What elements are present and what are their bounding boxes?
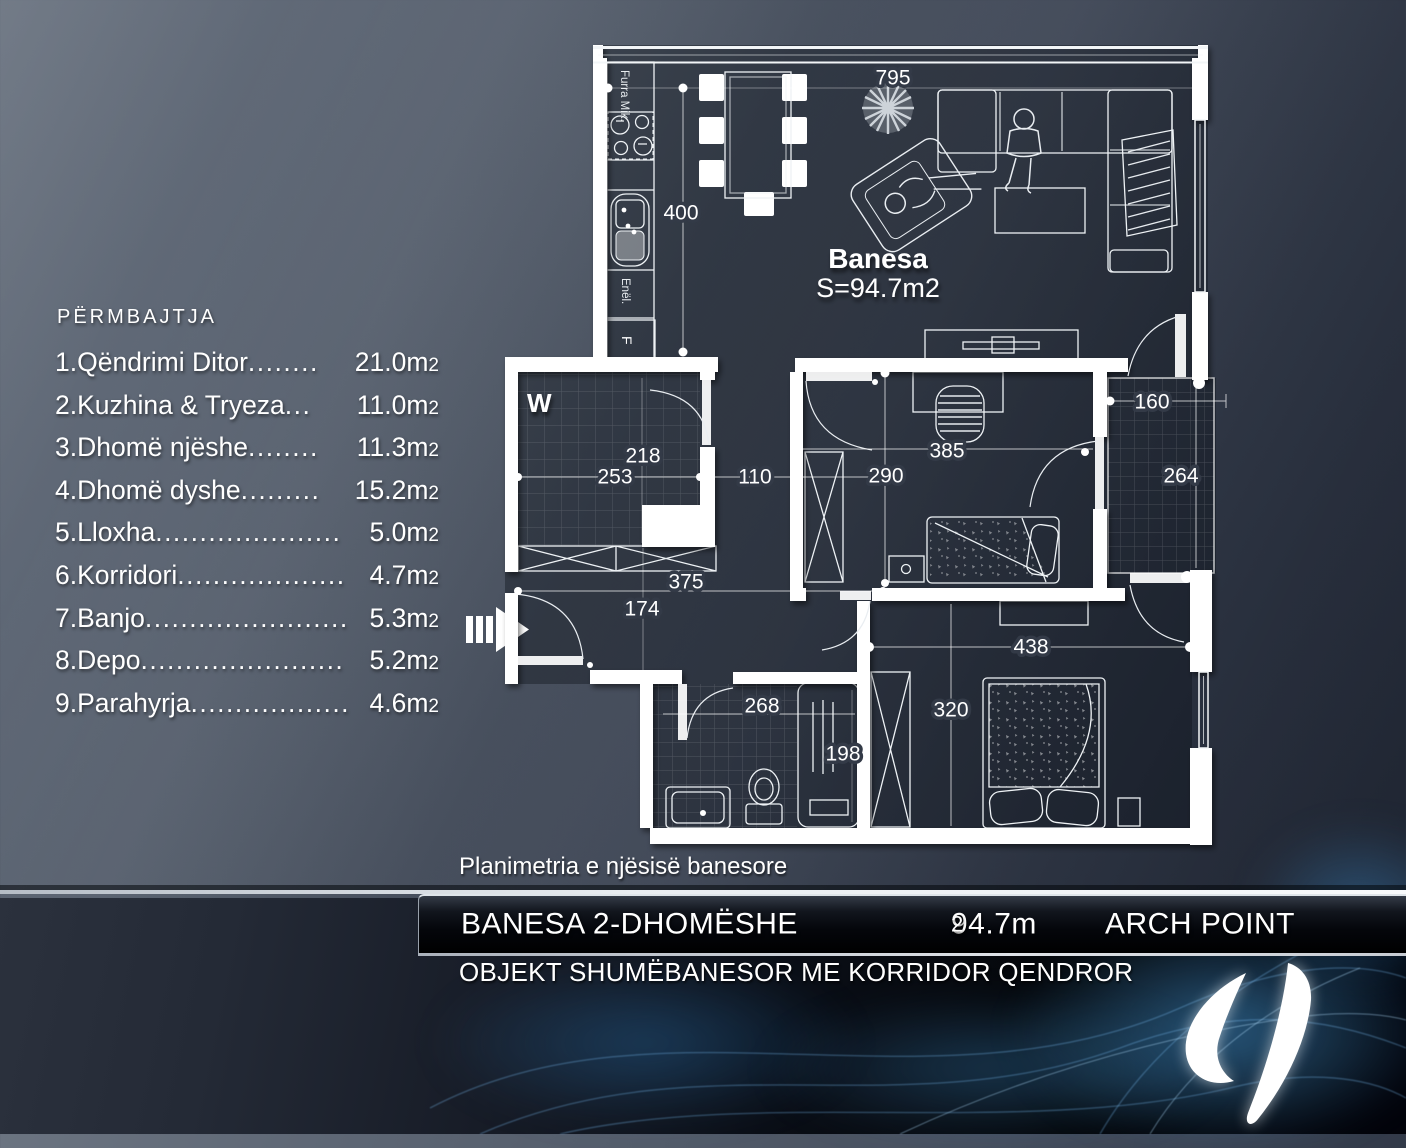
dim-w-room-width: 253 — [597, 466, 632, 489]
dim-room2-width: 438 — [1013, 636, 1048, 659]
dot-leader: ....................... — [145, 599, 370, 639]
dim-living-width: 795 — [875, 67, 910, 90]
legend-row: 1.Qëndrimi Ditor........21.0m2 — [55, 343, 439, 386]
dot-leader: ........ — [248, 343, 355, 383]
subtitle-text: OBJEKT SHUMËBANESOR ME KORRIDOR QENDROR — [459, 957, 1133, 988]
room-name: 9.Parahyrja — [55, 684, 191, 724]
room-area: 11.3m — [357, 428, 429, 468]
dim-shower-length: 198 — [825, 743, 860, 766]
legend-row: 8.Depo.......................5.2m2 — [55, 641, 439, 684]
area-superscript: 2 — [428, 516, 439, 556]
dim-closet-width: 375 — [668, 571, 703, 594]
w-room-label: W — [527, 388, 552, 418]
room-name: 5.Lloxha — [55, 513, 155, 553]
dot-leader: ................... — [177, 556, 369, 596]
unit-area-label: S=94.7m2 — [816, 273, 940, 303]
room-name: 8.Depo — [55, 641, 140, 681]
dim-balcony-width: 160 — [1134, 391, 1169, 414]
room-name: 2.Kuzhina & Tryeza — [55, 386, 285, 426]
area-superscript: 2 — [428, 559, 439, 599]
room-area: 11.0m — [357, 386, 429, 426]
brand-name: ARCH POINT — [1105, 907, 1295, 941]
area-superscript: 2 — [428, 389, 439, 429]
dot-leader: ... — [285, 386, 357, 426]
dot-leader: ......... — [241, 471, 355, 511]
legend-row: 9.Parahyrja..................4.6m2 — [55, 684, 439, 727]
area-superscript: 2 — [428, 644, 439, 684]
dim-hall-width: 110 — [738, 466, 771, 489]
area-superscript: 2 — [951, 911, 964, 937]
dim-room2-height: 320 — [933, 699, 968, 722]
room-area: 4.7m — [370, 556, 429, 596]
area-superscript: 2 — [428, 602, 439, 642]
area-superscript: 2 — [428, 431, 439, 471]
unit-name-label: Banesa — [828, 243, 928, 274]
dim-balcony-height: 264 — [1163, 465, 1198, 488]
legend-heading: PËRMBAJTJA — [57, 306, 439, 329]
legend-row: 7.Banjo.......................5.3m2 — [55, 599, 439, 642]
dim-room1-height: 290 — [868, 465, 903, 488]
fridge-label: F — [619, 336, 635, 345]
area-superscript: 2 — [428, 346, 439, 386]
area-superscript: 2 — [428, 687, 439, 727]
room-area: 21.0m — [355, 343, 429, 383]
dot-leader: ..................... — [155, 513, 369, 553]
dot-leader: .................. — [191, 684, 370, 724]
arch-point-logo-icon — [1168, 948, 1348, 1134]
dim-vestibule-height: 174 — [624, 598, 659, 621]
title-bar: BANESA 2-DHOMËSHE 94.7m2 ARCH POINT — [418, 894, 1406, 954]
dim-bath-width: 268 — [744, 695, 779, 718]
room-area: 5.0m — [370, 513, 429, 553]
room-name: 3.Dhomë njëshe — [55, 428, 248, 468]
kitchen-oven-label: Furra Mik. — [618, 70, 630, 122]
area-superscript: 2 — [428, 474, 439, 514]
room-area: 4.6m — [370, 684, 429, 724]
room-name: 6.Korridori — [55, 556, 177, 596]
dot-leader: ........ — [248, 428, 357, 468]
floor-plan-poster: { "colors": { "background_top": "#6b7481… — [0, 0, 1406, 1134]
dim-kitchen-height: 400 — [663, 202, 698, 225]
dot-leader: ....................... — [140, 641, 369, 681]
room-area: 5.3m — [370, 599, 429, 639]
room-area: 5.2m — [370, 641, 429, 681]
dim-w-room-height: 218 — [625, 445, 660, 468]
plan-caption: Planimetria e njësisë banesore — [459, 853, 787, 881]
room-name: 1.Qëndrimi Ditor — [55, 343, 248, 383]
legend-row: 6.Korridori...................4.7m2 — [55, 556, 439, 599]
room-name: 4.Dhomë dyshe — [55, 471, 241, 511]
legend-row: 4.Dhomë dyshe.........15.2m2 — [55, 471, 439, 514]
legend-row: 3.Dhomë njëshe........11.3m2 — [55, 428, 439, 471]
legend-row: 2.Kuzhina & Tryeza...11.0m2 — [55, 386, 439, 429]
legend: PËRMBAJTJA 1.Qëndrimi Ditor........21.0m… — [55, 306, 439, 726]
title-text: BANESA 2-DHOMËSHE — [461, 907, 798, 941]
room-name: 7.Banjo — [55, 599, 145, 639]
kitchen-dishes-label: Enël. — [619, 278, 631, 304]
dim-room1-width: 385 — [929, 440, 964, 463]
room-area: 15.2m — [355, 471, 429, 511]
legend-row: 5.Lloxha.....................5.0m2 — [55, 513, 439, 556]
